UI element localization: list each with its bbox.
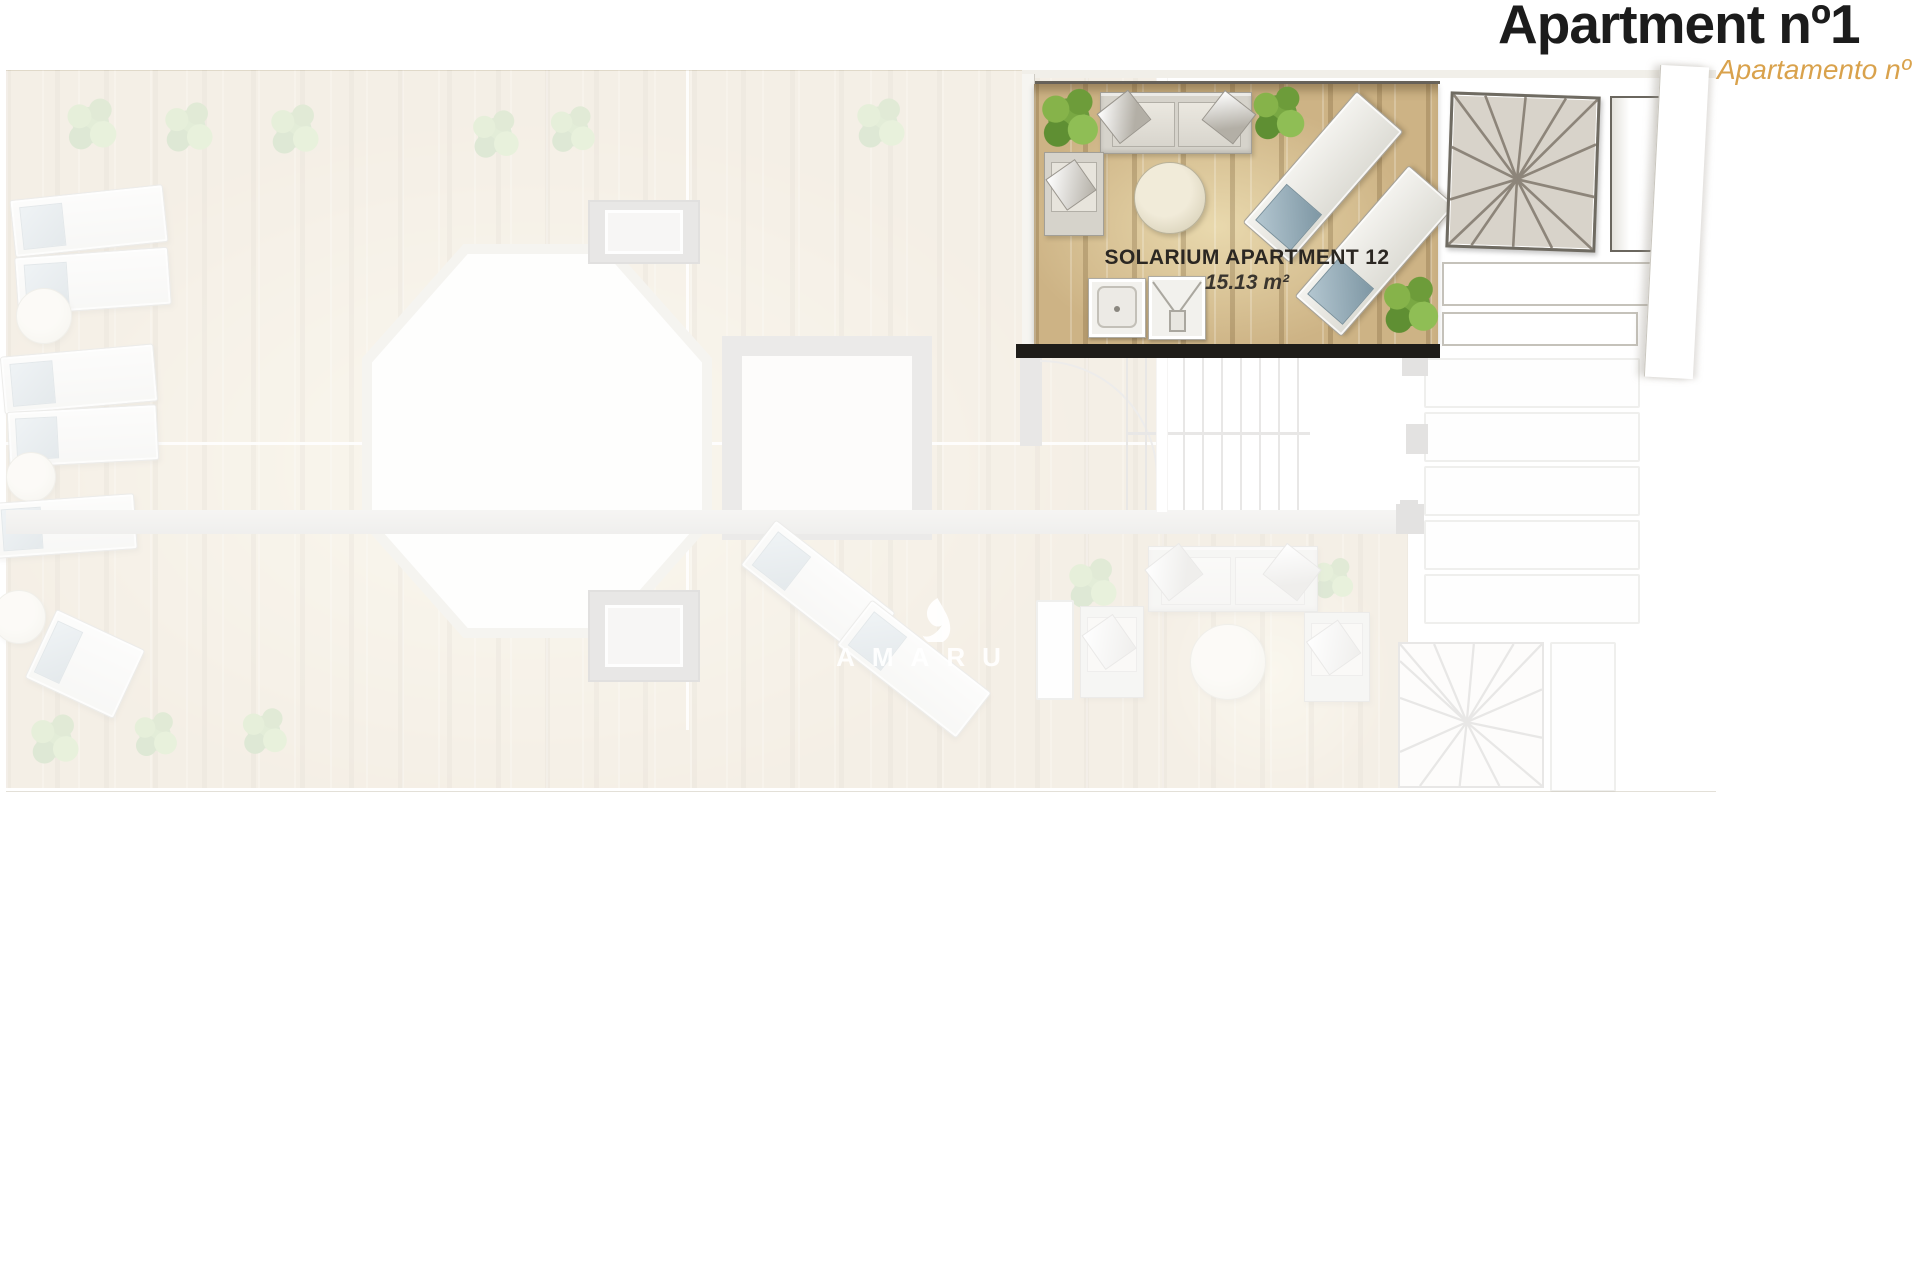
tree <box>130 710 180 760</box>
skylight-glass <box>605 210 683 254</box>
amaru-bird-logo-icon <box>918 596 954 642</box>
skylight-box <box>588 200 700 264</box>
tree <box>160 100 216 156</box>
skylight-glass <box>605 605 683 668</box>
roof-slab <box>1424 520 1640 570</box>
stair-spokes-icon <box>1400 644 1542 786</box>
tree <box>468 108 522 162</box>
armchair <box>1304 612 1370 702</box>
tree <box>62 96 120 154</box>
roof-slab <box>1424 358 1640 408</box>
floorplan-page: AMARU SOLARIUM APARTMENT 12 15.13 m² <box>0 0 1920 1280</box>
tree <box>266 102 322 158</box>
solarium-area: 15.13 m² <box>1057 271 1437 295</box>
round-table <box>1134 162 1206 234</box>
solarium-top-wall <box>1022 70 1716 78</box>
tree <box>852 96 908 152</box>
roof-slab <box>1442 312 1638 346</box>
solarium-label: SOLARIUM APARTMENT 12 <box>1057 246 1437 270</box>
sofa <box>1100 92 1252 154</box>
page-subtitle: Apartamento nº <box>1717 54 1911 86</box>
pyramid-roof <box>1445 91 1600 252</box>
wall-segment <box>1406 424 1428 454</box>
armchair <box>1080 606 1144 698</box>
solarium-boundary-wall <box>1016 344 1440 358</box>
side-table <box>6 452 56 502</box>
wall-segment <box>1020 354 1042 446</box>
roof-slab <box>1424 466 1640 516</box>
page-title: Apartment nº1 <box>1498 0 1860 50</box>
wall-segment <box>1400 500 1418 534</box>
roof-slab <box>1424 412 1640 462</box>
pool-water <box>372 254 702 628</box>
roof-slab <box>1442 262 1656 306</box>
octagonal-pool <box>362 244 712 638</box>
lounger-cushion <box>19 202 66 250</box>
amaru-watermark: AMARU <box>822 642 1032 673</box>
armchair <box>1044 152 1104 236</box>
planter-strip <box>1036 600 1074 700</box>
roof-ridge-lines-icon <box>1448 95 1597 250</box>
plant <box>1036 86 1102 152</box>
staircase-spiral-faded <box>1398 642 1544 788</box>
wall-segment <box>1402 356 1428 376</box>
plant <box>1248 84 1308 144</box>
tree <box>26 712 82 768</box>
roof-slab <box>1424 574 1640 624</box>
roof-parapet-band <box>6 510 1406 534</box>
lounger-cushion <box>9 360 56 407</box>
tree <box>238 706 290 758</box>
round-table <box>1190 624 1266 700</box>
staircase-treads <box>1126 356 1310 514</box>
side-table <box>16 288 72 344</box>
tree <box>546 104 598 156</box>
sofa <box>1148 546 1318 612</box>
skylight-box <box>588 590 700 682</box>
roof-slab <box>1550 642 1616 792</box>
